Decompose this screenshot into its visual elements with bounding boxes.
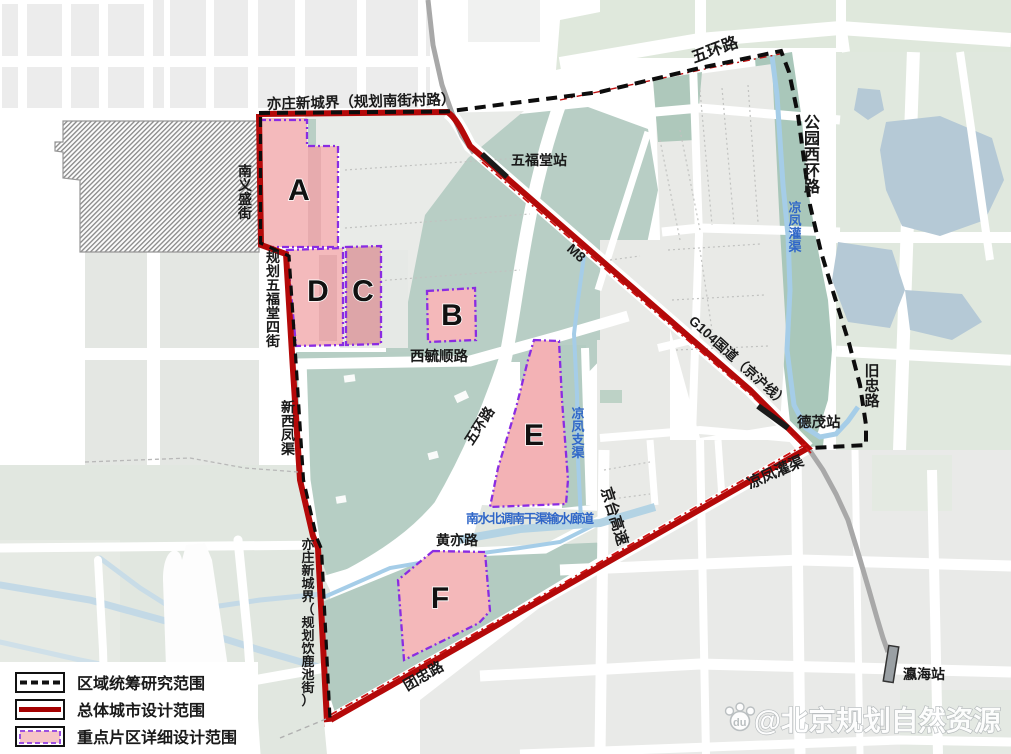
- svg-text:凉凤支渠: 凉凤支渠: [570, 406, 585, 460]
- svg-text:E: E: [524, 419, 544, 452]
- svg-text:F: F: [431, 582, 449, 615]
- svg-text:C: C: [352, 275, 374, 308]
- svg-text:du: du: [733, 717, 746, 729]
- svg-text:总体城市设计范围: 总体城市设计范围: [77, 702, 205, 720]
- svg-text:凉凤灌渠: 凉凤灌渠: [787, 200, 802, 254]
- svg-text:公园西环路: 公园西环路: [804, 114, 821, 196]
- svg-text:瀛海站: 瀛海站: [903, 666, 945, 682]
- svg-text:新西凤渠: 新西凤渠: [280, 399, 296, 457]
- svg-text:黄亦路: 黄亦路: [436, 532, 479, 548]
- svg-text:@北京规划自然资源: @北京规划自然资源: [754, 705, 1001, 736]
- svg-text:A: A: [288, 174, 310, 207]
- svg-text:区域统筹研究范围: 区域统筹研究范围: [77, 675, 205, 693]
- svg-text:B: B: [441, 299, 463, 332]
- svg-text:重点片区详细设计范围: 重点片区详细设计范围: [77, 729, 237, 747]
- svg-text:旧忠路: 旧忠路: [864, 363, 880, 410]
- svg-text:西毓顺路: 西毓顺路: [410, 348, 468, 365]
- svg-text:D: D: [307, 275, 329, 308]
- svg-text:亦庄新城界（规划饮鹿池街）: 亦庄新城界（规划饮鹿池街）: [300, 537, 315, 708]
- svg-text:德茂站: 德茂站: [797, 414, 841, 431]
- svg-text:南水北调南干渠输水廊道: 南水北调南干渠输水廊道: [466, 511, 594, 526]
- svg-text:五福堂站: 五福堂站: [511, 152, 567, 168]
- svg-text:规划五福堂四街: 规划五福堂四街: [265, 249, 280, 349]
- svg-text:南义盛街: 南义盛街: [237, 163, 253, 221]
